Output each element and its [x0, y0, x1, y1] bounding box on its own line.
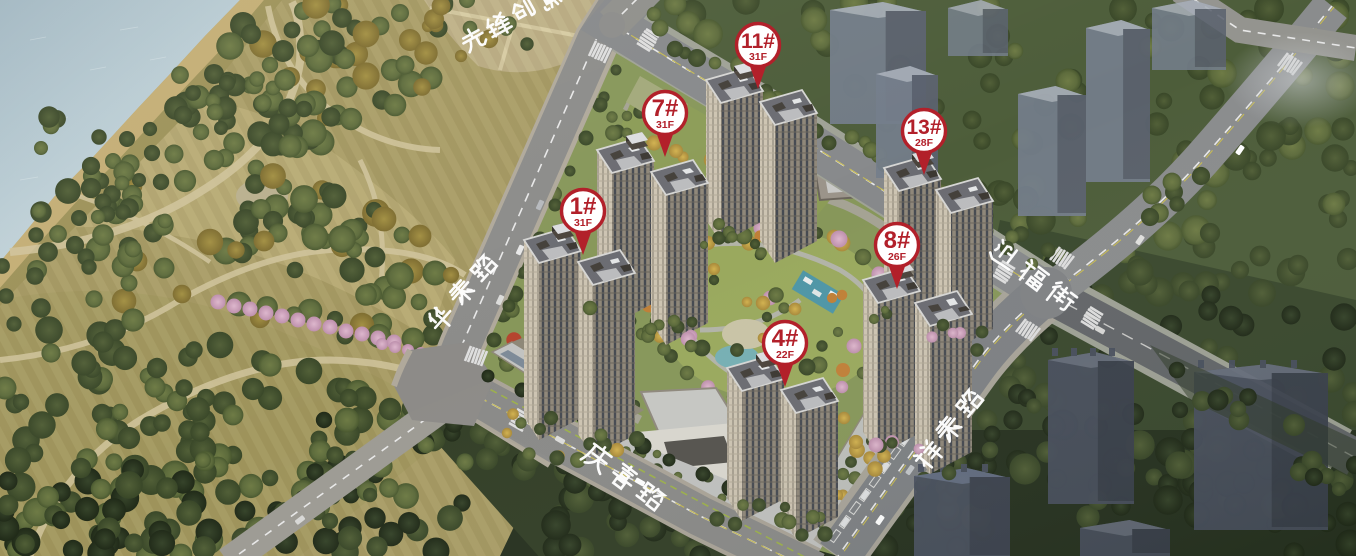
- svg-text:8#: 8#: [884, 227, 911, 254]
- svg-text:11#: 11#: [741, 30, 775, 53]
- svg-text:31F: 31F: [574, 217, 593, 229]
- svg-text:31F: 31F: [656, 119, 675, 131]
- svg-text:22F: 22F: [776, 349, 795, 361]
- svg-text:4#: 4#: [772, 325, 799, 352]
- svg-text:13#: 13#: [906, 116, 941, 139]
- svg-text:26F: 26F: [888, 251, 907, 263]
- svg-text:31F: 31F: [749, 51, 768, 63]
- svg-text:28F: 28F: [915, 137, 934, 149]
- svg-text:7#: 7#: [652, 95, 679, 122]
- svg-text:1#: 1#: [570, 193, 597, 220]
